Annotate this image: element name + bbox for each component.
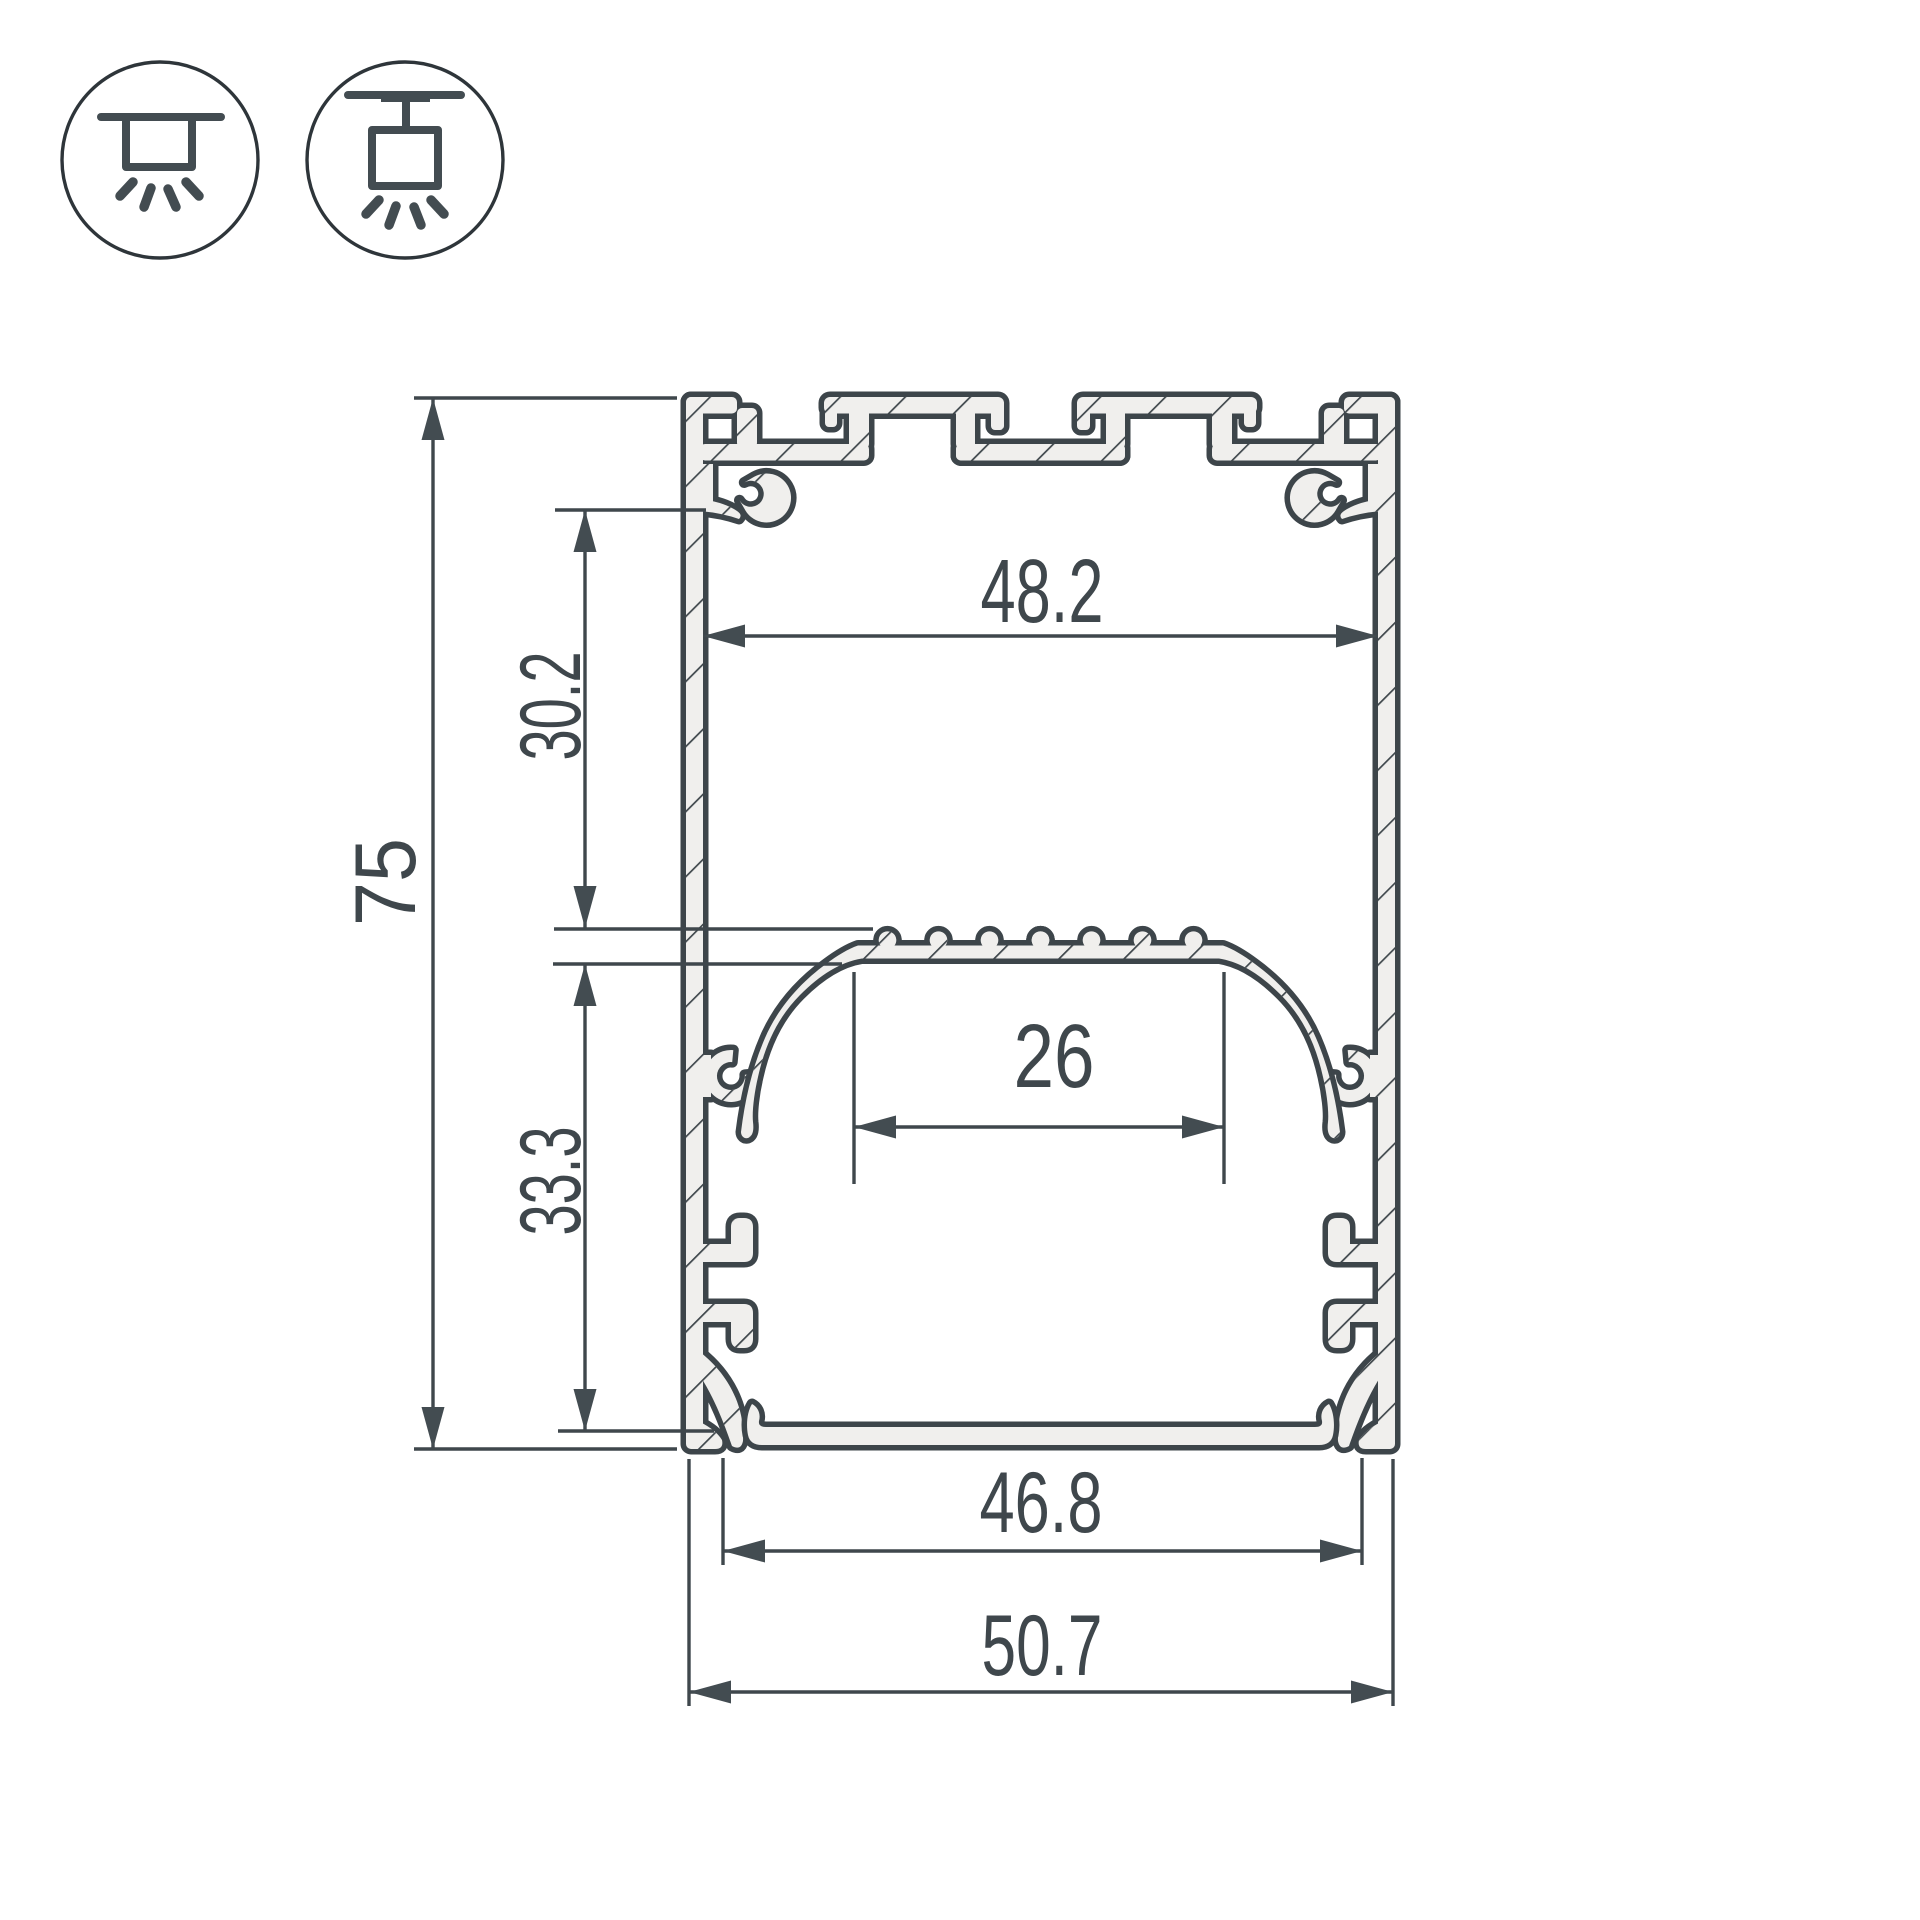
svg-text:26: 26 — [1014, 1007, 1095, 1107]
svg-text:46.8: 46.8 — [980, 1455, 1103, 1551]
svg-text:75: 75 — [338, 838, 434, 926]
svg-text:50.7: 50.7 — [982, 1598, 1103, 1694]
svg-text:30.2: 30.2 — [503, 652, 599, 761]
svg-text:33.3: 33.3 — [503, 1127, 599, 1236]
svg-text:48.2: 48.2 — [981, 542, 1104, 642]
